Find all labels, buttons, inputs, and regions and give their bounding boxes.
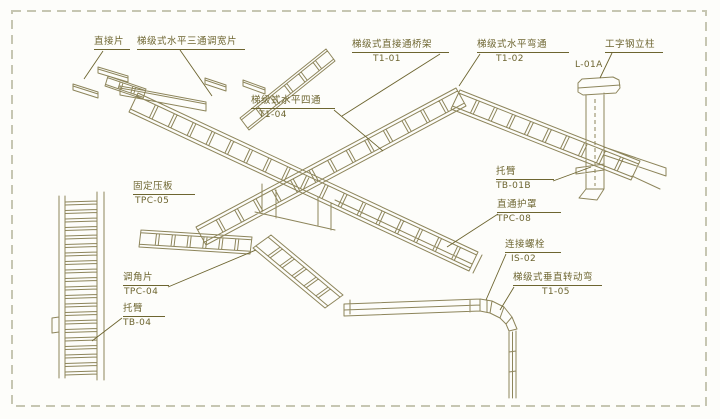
label-tb01b: 托臂 TB-01B [496, 167, 554, 192]
label-t102: 梯级式水平弯通 T1-02 [477, 40, 569, 65]
label-l01a-code: L-01A [575, 59, 603, 71]
label-is02: 连接螺栓 IS-02 [505, 240, 561, 265]
label-tpc04: 调角片 TPC-04 [123, 273, 169, 298]
label-tb01b-code: TB-01B [496, 180, 554, 192]
label-t105-code: T1-05 [513, 286, 602, 298]
label-tpc08: 直通护罩 TPC-08 [497, 200, 561, 225]
label-tb04-code: TB-04 [123, 317, 165, 329]
label-t102-name: 梯级式水平弯通 [477, 40, 569, 53]
label-tb04: 托臂 TB-04 [123, 304, 165, 329]
label-t101-code: T1-01 [352, 53, 449, 65]
label-t101-name: 梯级式直接通桥架 [352, 40, 449, 53]
label-l01a-name: 工字钢立柱 [605, 40, 663, 53]
label-t104-code: T1-04 [251, 109, 335, 121]
label-t105-name: 梯级式垂直转动弯 [513, 273, 602, 286]
label-santong-name: 梯级式水平三通调宽片 [137, 37, 245, 50]
label-l01a-code-block: L-01A [575, 59, 603, 71]
label-t105: 梯级式垂直转动弯 T1-05 [513, 273, 602, 298]
label-tpc08-name: 直通护罩 [497, 200, 561, 213]
label-tb01b-name: 托臂 [496, 167, 554, 180]
label-tpc04-name: 调角片 [123, 273, 169, 286]
label-t104: 梯级式水平四通 T1-04 [251, 96, 335, 121]
label-tpc05-name: 固定压板 [133, 182, 195, 195]
label-tb04-name: 托臂 [123, 304, 165, 317]
label-zhijiepian-name: 直接片 [94, 37, 130, 50]
label-tpc05-code: TPC-05 [133, 195, 195, 207]
label-is02-code: IS-02 [505, 253, 561, 265]
label-l01a-title: 工字钢立柱 [605, 40, 663, 53]
drawing-area: 直接片 梯级式水平三通调宽片 梯级式直接通桥架 T1-01 梯级式水平弯通 T1… [0, 0, 720, 419]
label-t102-code: T1-02 [477, 53, 569, 65]
label-t101: 梯级式直接通桥架 T1-01 [352, 40, 449, 65]
label-tpc05: 固定压板 TPC-05 [133, 182, 195, 207]
label-tpc04-code: TPC-04 [123, 286, 169, 298]
label-tpc08-code: TPC-08 [497, 213, 561, 225]
tray-line-art [52, 49, 666, 398]
label-santong: 梯级式水平三通调宽片 [137, 37, 245, 50]
label-zhijiepian: 直接片 [94, 37, 130, 50]
label-t104-name: 梯级式水平四通 [251, 96, 335, 109]
label-is02-name: 连接螺栓 [505, 240, 561, 253]
